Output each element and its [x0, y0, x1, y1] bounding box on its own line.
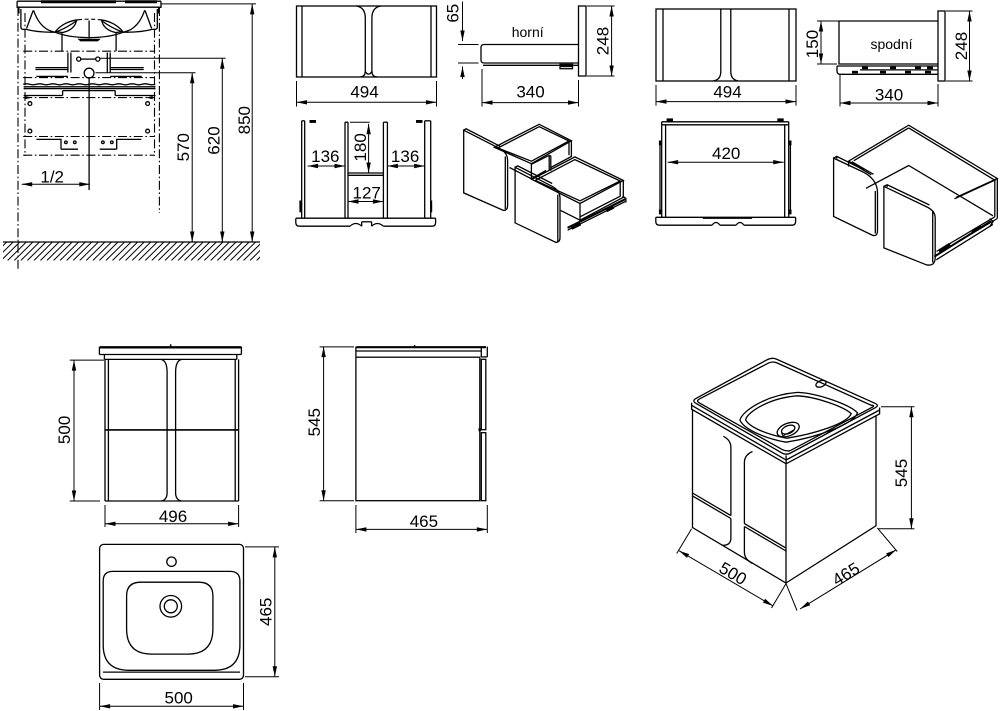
svg-text:500: 500 — [165, 689, 193, 708]
svg-text:850: 850 — [235, 106, 254, 134]
svg-text:465: 465 — [256, 598, 275, 626]
svg-text:248: 248 — [593, 27, 612, 55]
svg-text:180: 180 — [351, 133, 370, 161]
svg-text:150: 150 — [803, 30, 822, 58]
svg-text:545: 545 — [892, 459, 911, 487]
svg-text:136: 136 — [391, 147, 419, 166]
svg-text:620: 620 — [205, 126, 224, 154]
svg-text:494: 494 — [713, 83, 741, 102]
svg-text:127: 127 — [353, 183, 381, 202]
svg-text:500: 500 — [55, 416, 74, 444]
svg-text:570: 570 — [174, 133, 193, 161]
svg-text:horní: horní — [512, 24, 544, 40]
svg-text:1/2: 1/2 — [40, 168, 64, 187]
svg-text:340: 340 — [875, 86, 903, 105]
svg-text:500: 500 — [716, 558, 750, 589]
svg-text:65: 65 — [443, 4, 462, 23]
svg-text:494: 494 — [350, 83, 378, 102]
svg-text:420: 420 — [712, 144, 740, 163]
svg-text:545: 545 — [305, 408, 324, 436]
svg-text:465: 465 — [410, 512, 438, 531]
svg-text:spodní: spodní — [870, 36, 912, 52]
svg-text:465: 465 — [829, 559, 863, 590]
svg-text:136: 136 — [311, 147, 339, 166]
svg-text:496: 496 — [159, 507, 187, 526]
svg-text:340: 340 — [516, 83, 544, 102]
svg-text:248: 248 — [952, 32, 971, 60]
